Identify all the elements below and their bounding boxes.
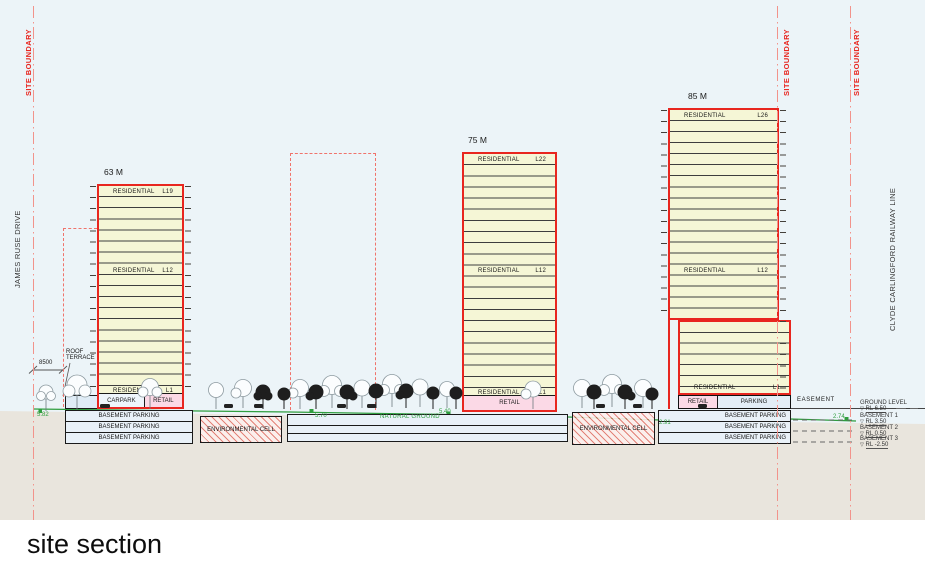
level-symbol-icon: ▽ (860, 406, 864, 412)
basement-leader-dashes (793, 409, 918, 443)
level-ground: GROUND LEVEL ▽ RL 6.50 (860, 400, 907, 412)
spot-level: 5.82 (37, 412, 49, 418)
spot-level: 2.91 (659, 420, 671, 426)
level-symbol-icon: ▽ (860, 442, 864, 448)
site-boundary-label-mid: SITE BOUNDARY (782, 29, 791, 96)
easement-label: EASEMENT (797, 397, 835, 403)
railway-line-label: CLYDE CARLINGFORD RAILWAY LINE (888, 188, 897, 331)
site-boundary-label-left: SITE BOUNDARY (24, 29, 33, 96)
street-furniture-icon (100, 404, 707, 408)
level-rl: RL 6.50 (866, 406, 887, 413)
site-boundary-line-left (33, 6, 34, 520)
site-boundary-line-mid (777, 6, 778, 520)
dimension-8500-label: 8500 (39, 360, 52, 366)
spot-level: 2.74 (833, 414, 845, 420)
site-boundary-label-right: SITE BOUNDARY (852, 29, 861, 96)
spot-level: 5.40 (439, 409, 451, 415)
james-ruse-drive-label: JAMES RUSE DRIVE (13, 210, 22, 288)
level-basement1: BASEMENT 1 ▽ RL 3.50 (860, 413, 898, 425)
level-basement3: BASEMENT 3 ▽ RL -2.50 (860, 436, 898, 448)
natural-ground-label: NATURAL GROUND (380, 414, 440, 420)
page-title: site section (27, 529, 162, 560)
spot-level: 5.70 (315, 413, 327, 419)
level-rl: RL -2.50 (866, 442, 889, 449)
roof-terrace-label: ROOF TERRACE (66, 349, 96, 361)
site-section-drawing: BASEMENT PARKING BASEMENT PARKING BASEME… (0, 0, 925, 568)
